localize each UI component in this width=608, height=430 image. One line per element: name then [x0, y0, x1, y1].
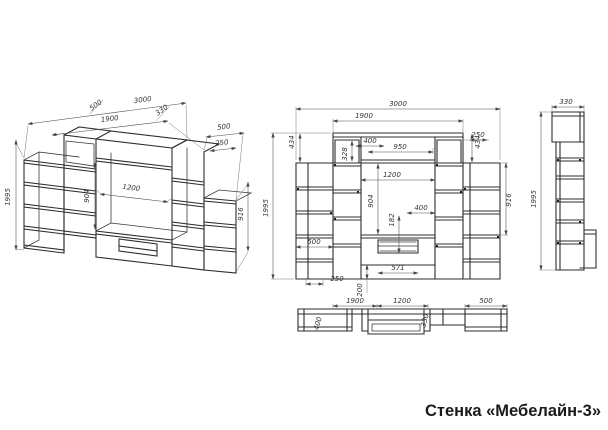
iso-dim-center-width: 1900: [100, 114, 119, 124]
front-dim-lower-shelf: 400: [414, 204, 428, 212]
plan-stand-drawer: [372, 324, 420, 331]
front-dim-shelf-left: 500: [307, 238, 321, 246]
plan-dim-depth-left: 400: [312, 315, 323, 331]
iso-dim-depth-right: 330: [154, 103, 170, 118]
side-extension-lines: [539, 105, 584, 270]
iso-bridge-niche-stand: [96, 131, 187, 266]
front-dim-top-shelf: 400: [363, 137, 377, 145]
iso-dim-side-height: 916: [237, 207, 245, 221]
side-dim-depth: 330: [559, 98, 573, 106]
plan-dim-depth-center: 330: [419, 312, 430, 328]
iso-dim-depth-left: 500: [88, 98, 104, 113]
front-tv-stand: [361, 235, 435, 265]
front-outline: [296, 133, 500, 279]
side-dim-height: 1995: [530, 190, 538, 208]
plan-outline: [298, 309, 507, 334]
plan-right-wing: [430, 309, 507, 331]
plan-left-wing: [298, 309, 352, 331]
iso-dim-top-right-shelf: 250: [215, 138, 230, 147]
front-dim-drawer-width: 571: [391, 264, 404, 272]
side-bottom-box: [580, 230, 596, 268]
iso-right-wing-depth: [204, 190, 251, 201]
iso-outline: [24, 127, 251, 273]
front-dim-shelf-right: 250: [471, 131, 485, 139]
iso-left-door: [66, 141, 94, 166]
front-dim-base-shelf: 250: [330, 275, 344, 283]
plan-dim-left-section: 1900: [346, 297, 364, 305]
plan-dim-right-section: 500: [479, 297, 493, 305]
front-dim-door-height: 328: [341, 147, 349, 161]
front-view: 3000 1900 434 434 400 950 328 250 1200 9…: [262, 100, 513, 297]
front-dim-overall-width: 3000: [389, 100, 407, 108]
isometric-view: 1995 3000 1900 500 330 500 250 1200 904 …: [4, 95, 251, 273]
drawing-title: Стенка «Мебелайн-3»: [425, 402, 601, 420]
front-dim-niche-height: 904: [367, 194, 375, 207]
front-dim-height: 1995: [262, 199, 270, 217]
front-dim-side-height: 916: [505, 193, 513, 207]
front-bridge: [361, 160, 435, 163]
front-dim-base-height: 200: [356, 283, 364, 297]
drawing-canvas: 1995 3000 1900 500 330 500 250 1200 904 …: [0, 0, 608, 430]
iso-niche-back: [96, 148, 187, 240]
iso-left-wing: [24, 160, 64, 253]
front-dim-offset-left: 434: [288, 135, 296, 148]
side-view: 330 1995: [530, 98, 596, 270]
iso-dim-niche-height: 904: [83, 189, 91, 202]
drawing-sheet: 1995 3000 1900 500 330 500 250 1200 904 …: [0, 0, 608, 430]
plan-dim-center-section: 1200: [393, 297, 411, 305]
front-drawer: [378, 242, 418, 251]
front-dim-upper-niche: 950: [393, 143, 407, 151]
iso-dim-overall-width: 3000: [133, 95, 152, 105]
side-outline: [552, 112, 596, 270]
plan-view: 1900 1200 500 400 330: [298, 297, 507, 334]
front-left-wing: [296, 163, 333, 279]
iso-right-tower: [172, 140, 219, 270]
side-column: [556, 142, 584, 270]
front-dim-center-width: 1900: [355, 112, 373, 120]
iso-dim-top-right-width: 500: [217, 122, 232, 131]
iso-dim-niche-width: 1200: [122, 183, 141, 193]
front-right-tower: [435, 140, 463, 247]
front-right-wing: [463, 163, 500, 279]
iso-right-wing: [204, 198, 236, 273]
side-top-box: [552, 112, 584, 142]
side-dimension-lines: [541, 107, 584, 270]
front-dim-drawer-height: 182: [388, 213, 396, 227]
front-top-panel: [296, 133, 500, 279]
iso-dim-height: 1995: [4, 188, 12, 206]
front-dim-niche-width: 1200: [383, 171, 401, 179]
plan-back-strip: [298, 309, 507, 314]
